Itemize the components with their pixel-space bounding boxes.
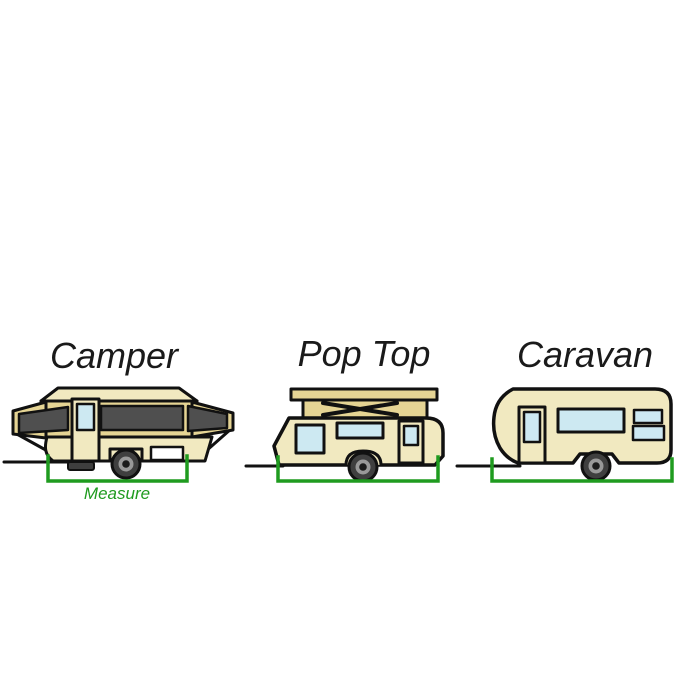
pop-top-wheel-icon [349,453,377,481]
camper-door-window [77,404,94,430]
camper-wheel-icon [112,450,140,478]
pop-top-illustration [274,389,443,481]
pop-top-roof [291,389,437,400]
pop-top-front-window [296,425,324,453]
pop-top-main-window [337,423,383,438]
caravan-main-window [558,409,624,432]
pop-top-door-window [404,426,418,445]
camper-center-window [101,406,183,430]
caravan-small-window-top [634,410,662,423]
vehicles-illustration [0,0,700,700]
diagram-canvas: Camper Pop Top Caravan [0,0,700,700]
caravan-wheel-icon [582,452,610,480]
camper-hatch [151,447,183,460]
caravan-small-window-bottom [633,426,664,440]
camper-illustration [13,388,233,478]
caravan-door-window [524,412,540,442]
camper-step [68,462,94,470]
camper-roof [41,388,197,401]
measure-label: Measure [57,484,177,504]
